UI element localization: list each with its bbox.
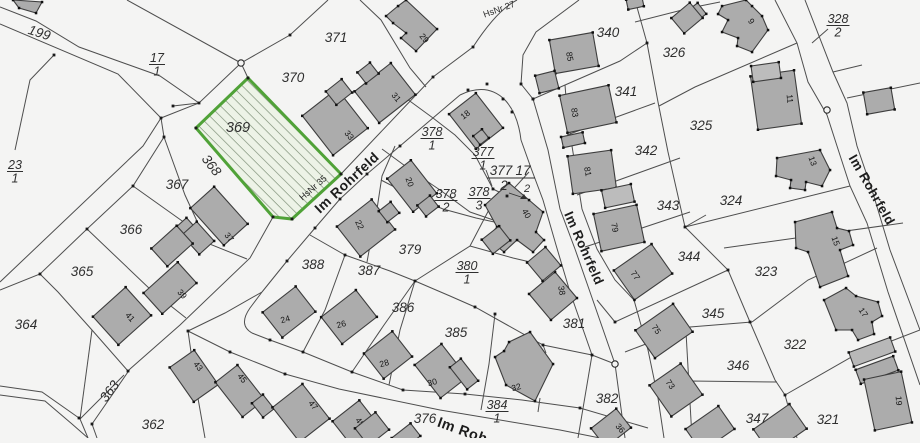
svg-text:38: 38 — [556, 285, 568, 296]
svg-text:321: 321 — [817, 412, 840, 427]
svg-text:381: 381 — [563, 316, 586, 331]
svg-text:83: 83 — [569, 107, 581, 118]
svg-text:341: 341 — [615, 84, 638, 99]
svg-text:378: 378 — [436, 187, 457, 201]
svg-text:343: 343 — [657, 198, 680, 213]
svg-text:377: 377 — [490, 163, 513, 178]
svg-text:326: 326 — [663, 45, 686, 60]
svg-text:11: 11 — [785, 94, 796, 104]
svg-text:378: 378 — [469, 185, 490, 199]
svg-text:323: 323 — [755, 264, 778, 279]
svg-text:322: 322 — [784, 337, 807, 352]
svg-text:328: 328 — [828, 12, 849, 26]
svg-text:384: 384 — [487, 398, 508, 412]
svg-text:376: 376 — [414, 411, 437, 426]
svg-text:2: 2 — [523, 183, 530, 195]
svg-text:2: 2 — [499, 178, 508, 193]
svg-text:382: 382 — [596, 391, 619, 406]
svg-text:81: 81 — [582, 166, 594, 177]
svg-text:387: 387 — [358, 263, 381, 278]
svg-text:1: 1 — [12, 172, 19, 186]
svg-text:17: 17 — [515, 163, 531, 178]
svg-text:1: 1 — [154, 65, 161, 79]
svg-text:370: 370 — [282, 70, 305, 85]
svg-text:85: 85 — [564, 51, 576, 62]
svg-text:2: 2 — [834, 26, 842, 40]
svg-text:362: 362 — [142, 417, 165, 432]
svg-text:347: 347 — [746, 411, 769, 426]
svg-text:379: 379 — [399, 242, 422, 257]
svg-text:1: 1 — [480, 159, 487, 173]
svg-text:380: 380 — [457, 259, 478, 273]
svg-text:364: 364 — [15, 317, 38, 332]
svg-text:2: 2 — [442, 201, 450, 215]
svg-text:346: 346 — [727, 358, 750, 373]
svg-text:1: 1 — [429, 139, 436, 153]
svg-text:345: 345 — [702, 306, 725, 321]
svg-text:369: 369 — [226, 120, 250, 136]
svg-text:378: 378 — [422, 125, 443, 139]
svg-text:386: 386 — [392, 300, 415, 315]
svg-text:340: 340 — [597, 25, 620, 40]
svg-text:344: 344 — [678, 249, 701, 264]
svg-text:19: 19 — [894, 396, 905, 407]
svg-text:385: 385 — [445, 325, 468, 340]
svg-text:324: 324 — [720, 193, 743, 208]
svg-text:371: 371 — [325, 30, 348, 45]
svg-text:17: 17 — [150, 51, 165, 65]
svg-text:325: 325 — [690, 118, 713, 133]
svg-text:1: 1 — [464, 273, 471, 287]
svg-text:388: 388 — [302, 257, 325, 272]
svg-text:3: 3 — [476, 199, 483, 213]
svg-text:366: 366 — [120, 222, 143, 237]
svg-text:377: 377 — [473, 145, 495, 159]
svg-text:23: 23 — [7, 158, 22, 172]
svg-text:342: 342 — [635, 143, 658, 158]
svg-text:79: 79 — [609, 222, 621, 233]
svg-text:367: 367 — [166, 177, 189, 192]
svg-text:365: 365 — [71, 264, 94, 279]
svg-text:1: 1 — [494, 412, 501, 426]
